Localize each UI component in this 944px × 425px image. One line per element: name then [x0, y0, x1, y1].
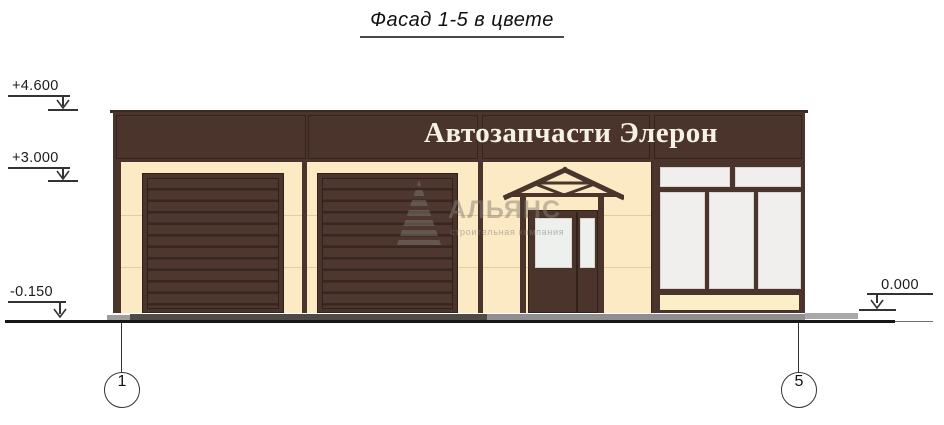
drawing-title: Фасад 1-5 в цвете [330, 9, 594, 38]
axis-number-5: 5 [795, 373, 804, 390]
down-arrow-icon [55, 170, 71, 180]
elevation-leader-line [8, 301, 66, 303]
sign-panel [116, 115, 306, 159]
entrance-post-right [598, 196, 604, 313]
elevation-leader-line [8, 167, 70, 169]
pilaster-mid-1 [302, 162, 307, 313]
elevation-tick-line [859, 309, 896, 311]
down-arrow-icon [869, 299, 885, 309]
transom-pane-2 [735, 167, 801, 187]
axis-bubble-5: 5 [781, 372, 817, 408]
window-pane-2 [709, 192, 754, 289]
sign-band: Автозапчасти Элерон [113, 112, 805, 162]
axis-line-5 [798, 323, 799, 372]
watermark-company-name: АЛЬЯНС [448, 196, 561, 225]
elevation-label-parapet: +4.600 [12, 78, 59, 94]
entrance-door [528, 210, 598, 313]
elevation-label-signband: +3.000 [12, 150, 59, 166]
door-glass-left [535, 218, 572, 268]
window-pane-1 [660, 192, 705, 289]
axis-line-1 [121, 323, 122, 372]
axis-bubble-1: 1 [104, 372, 140, 408]
pilaster-left [113, 162, 121, 313]
window-pane-3 [758, 192, 801, 289]
transom-pane-1 [660, 167, 730, 187]
storefront-window [651, 162, 805, 313]
drawing-title-text: Фасад 1-5 в цвете [360, 9, 564, 38]
elevation-leader-line [8, 95, 70, 97]
ground-line [5, 320, 895, 323]
facade-drawing: Фасад 1-5 в цвете +4.600 +3.000 -0.150 0… [0, 0, 944, 425]
spandrel-panel [660, 295, 799, 310]
door-leaf-divider [576, 212, 578, 312]
ground-line-extension [895, 321, 933, 322]
sidewalk-apron-right [805, 313, 858, 319]
sign-text: Автозапчасти Элерон [401, 117, 741, 150]
garage-door-1 [142, 173, 284, 313]
down-arrow-icon [52, 308, 68, 318]
down-arrow-icon [55, 99, 71, 109]
elevation-label-ground-right: 0.000 [872, 277, 928, 293]
pilaster-mid-2 [478, 162, 483, 313]
watermark-tagline: строительная компания [450, 227, 564, 237]
door-glass-right [580, 218, 595, 268]
elevation-tick-line [48, 109, 78, 111]
garage-door-slats [147, 178, 279, 309]
elevation-tick-line [48, 180, 78, 182]
elevation-label-ground-left: -0.150 [10, 284, 53, 300]
axis-number-1: 1 [118, 373, 127, 390]
